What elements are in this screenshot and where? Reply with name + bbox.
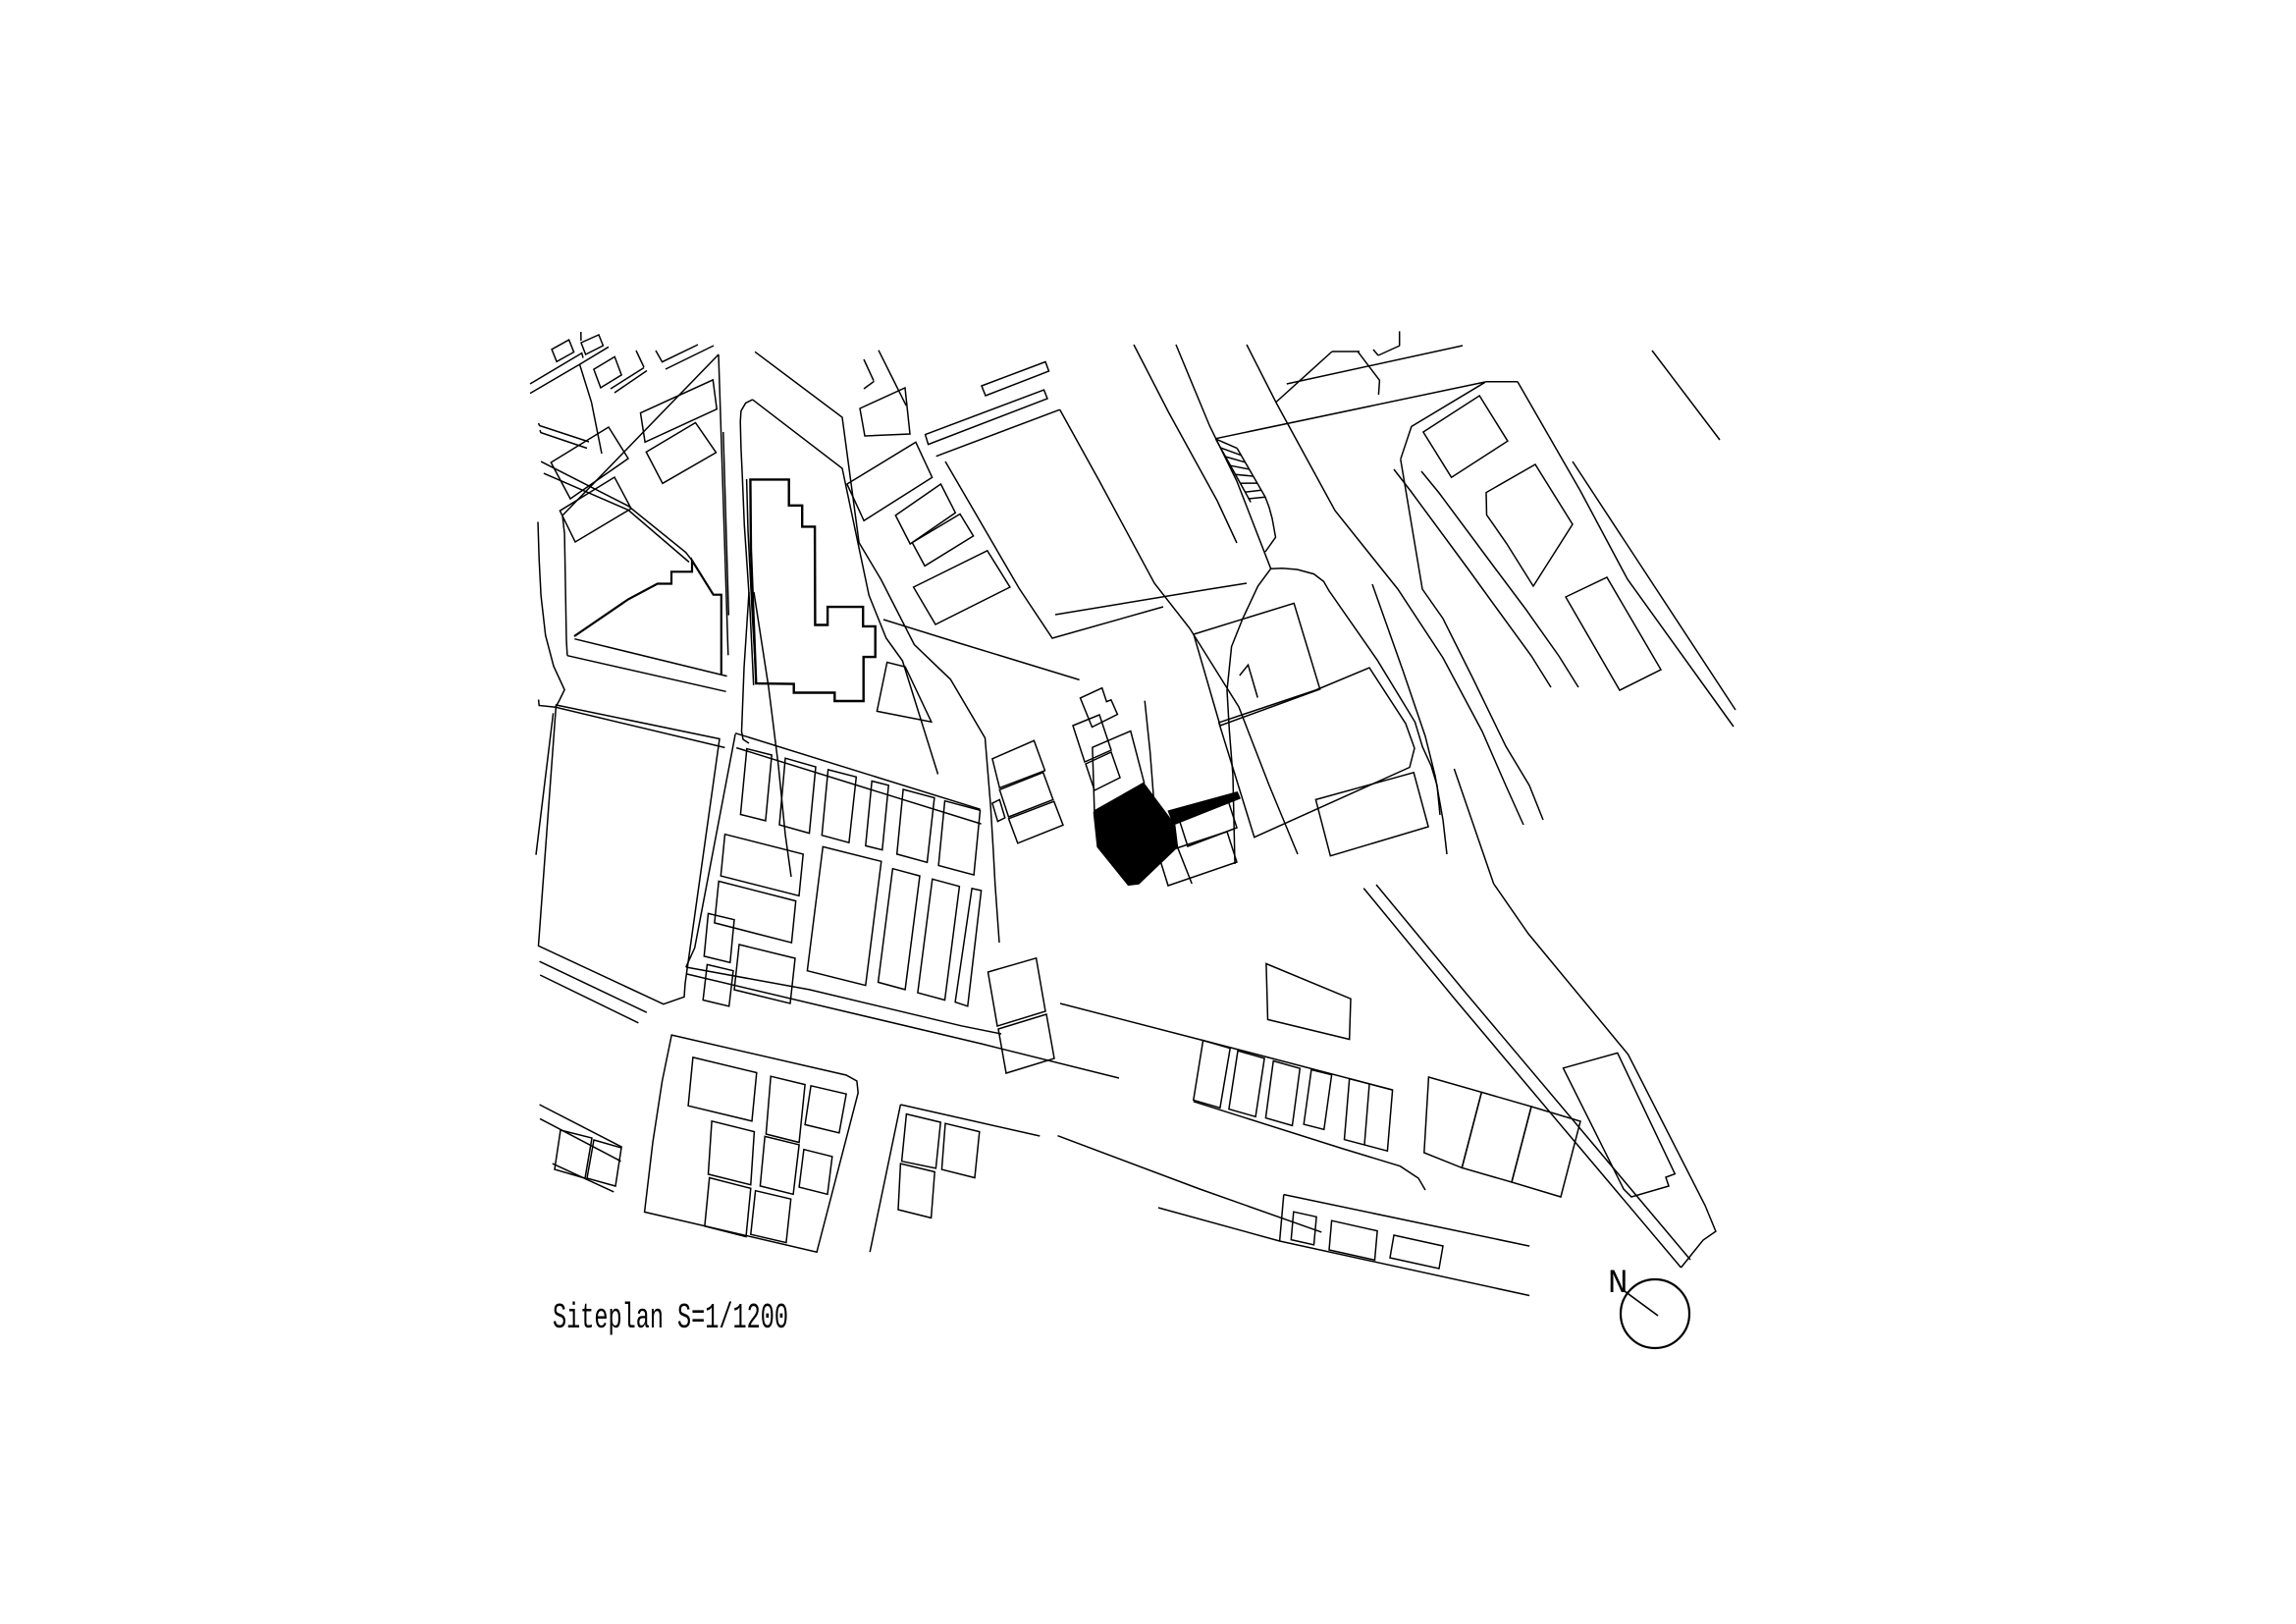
svg-text:Siteplan S=1/1200: Siteplan S=1/1200 bbox=[553, 1298, 788, 1338]
svg-text:N: N bbox=[1608, 1266, 1628, 1303]
